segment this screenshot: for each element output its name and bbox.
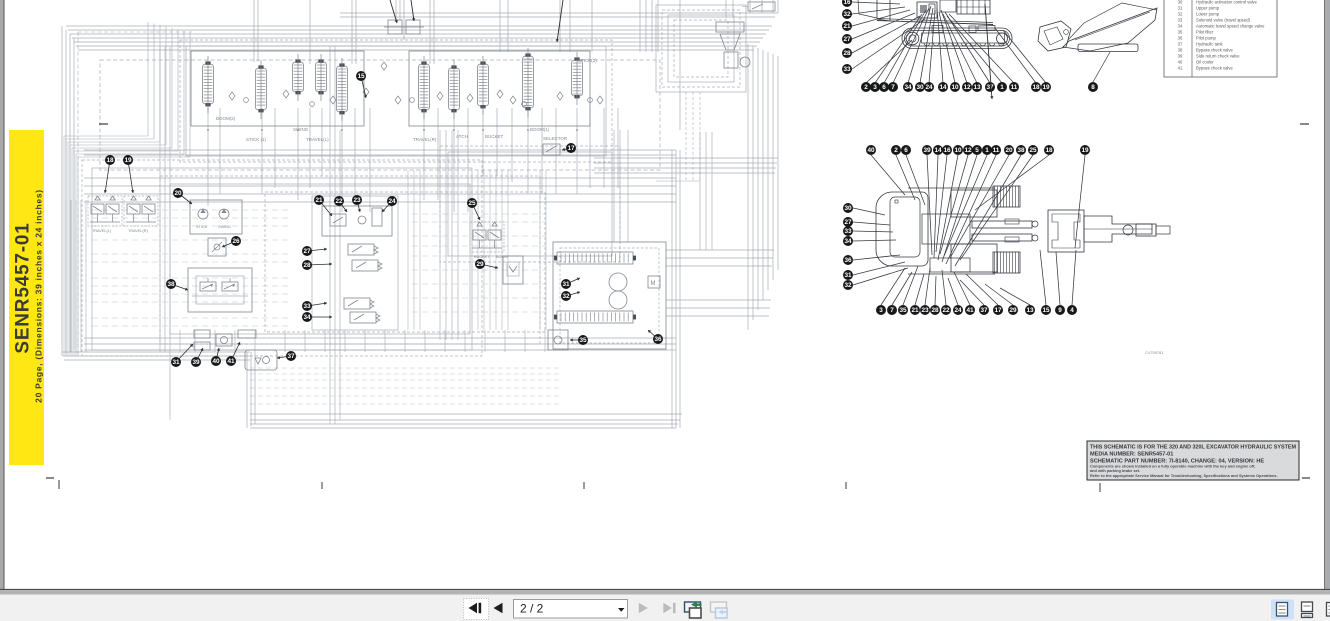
- svg-text:1: 1: [985, 147, 989, 154]
- svg-text:13: 13: [1026, 307, 1034, 314]
- svg-text:Bypass check valve: Bypass check valve: [1196, 66, 1233, 71]
- svg-text:31: 31: [172, 359, 180, 366]
- svg-text:4: 4: [1070, 307, 1074, 314]
- svg-text:M: M: [651, 281, 656, 287]
- svg-text:27: 27: [303, 248, 311, 255]
- svg-text:19: 19: [1042, 84, 1050, 91]
- svg-text:21: 21: [315, 197, 323, 204]
- svg-text:32: 32: [844, 282, 852, 289]
- svg-text:33: 33: [844, 228, 852, 235]
- svg-text:Automatic travel speed change: Automatic travel speed change valve: [1196, 24, 1265, 29]
- svg-text:Side return check valve: Side return check valve: [1196, 54, 1240, 59]
- svg-text:27: 27: [844, 219, 852, 226]
- svg-text:11: 11: [993, 147, 1000, 154]
- svg-text:25: 25: [1029, 147, 1037, 154]
- svg-text:7: 7: [891, 84, 895, 91]
- svg-text:Pilot filter: Pilot filter: [1196, 30, 1214, 35]
- svg-text:3: 3: [873, 84, 877, 91]
- svg-text:TRAVEL(R): TRAVEL(R): [128, 229, 148, 233]
- svg-text:24: 24: [925, 84, 933, 91]
- svg-text:34: 34: [1178, 24, 1183, 29]
- svg-text:5: 5: [975, 147, 979, 154]
- svg-text:31: 31: [844, 272, 852, 279]
- svg-text:35: 35: [899, 307, 907, 314]
- svg-text:SWING: SWING: [293, 127, 309, 132]
- svg-text:25: 25: [468, 200, 476, 207]
- svg-text:21: 21: [911, 307, 919, 314]
- svg-text:36: 36: [1178, 36, 1183, 41]
- svg-text:19: 19: [1081, 147, 1089, 154]
- svg-text:40: 40: [212, 358, 220, 365]
- svg-text:32: 32: [562, 293, 570, 300]
- svg-text:20: 20: [1005, 147, 1013, 154]
- svg-text:Upper pump: Upper pump: [1196, 6, 1220, 11]
- svg-text:24: 24: [954, 307, 962, 314]
- svg-text:35: 35: [1178, 30, 1183, 35]
- svg-text:41: 41: [1178, 66, 1183, 71]
- svg-text:STICK(2): STICK(2): [578, 58, 597, 63]
- svg-text:2: 2: [894, 147, 898, 154]
- svg-text:37: 37: [986, 84, 994, 91]
- svg-text:11: 11: [1011, 84, 1018, 91]
- svg-text:13: 13: [973, 84, 981, 91]
- svg-text:37: 37: [980, 307, 988, 314]
- svg-text:TRAVEL(L): TRAVEL(L): [306, 137, 329, 142]
- svg-text:ATCH: ATCH: [456, 134, 468, 139]
- svg-text:14: 14: [939, 84, 947, 91]
- svg-text:31: 31: [1178, 6, 1183, 11]
- svg-text:16: 16: [843, 0, 851, 6]
- svg-text:Oil cooler: Oil cooler: [1196, 60, 1214, 65]
- svg-text:30: 30: [844, 205, 852, 212]
- svg-text:12: 12: [964, 147, 972, 154]
- svg-text:23: 23: [353, 197, 361, 204]
- svg-text:BUCKET: BUCKET: [485, 134, 504, 139]
- svg-text:Refer to the appropriate Servi: Refer to the appropriate Service Manual …: [1090, 473, 1278, 478]
- svg-text:17: 17: [994, 307, 1002, 314]
- svg-text:22: 22: [335, 198, 343, 205]
- svg-text:Bypass check valve: Bypass check valve: [1196, 48, 1233, 53]
- svg-text:40: 40: [867, 147, 875, 154]
- svg-text:6: 6: [904, 147, 908, 154]
- svg-text:36: 36: [844, 257, 852, 264]
- svg-text:1: 1: [1000, 84, 1004, 91]
- svg-text:18: 18: [1045, 147, 1053, 154]
- svg-text:34: 34: [303, 314, 311, 321]
- svg-text:33: 33: [303, 303, 311, 310]
- svg-text:16: 16: [943, 147, 951, 154]
- svg-text:STICK (1): STICK (1): [246, 137, 267, 142]
- svg-text:32: 32: [843, 11, 851, 18]
- svg-text:12: 12: [963, 84, 971, 91]
- svg-text:Lower pump: Lower pump: [1196, 12, 1220, 17]
- svg-text:10: 10: [951, 84, 959, 91]
- svg-text:9: 9: [1058, 307, 1062, 314]
- svg-text:TRAVEL(L): TRAVEL(L): [92, 229, 112, 233]
- svg-text:30: 30: [1178, 0, 1183, 5]
- svg-text:2 / 2: 2 / 2: [520, 602, 544, 616]
- svg-text:STICK: STICK: [196, 225, 208, 229]
- svg-text:28: 28: [843, 50, 851, 57]
- svg-text:18: 18: [1032, 84, 1040, 91]
- svg-text:SWING: SWING: [218, 225, 231, 229]
- svg-text:36: 36: [654, 336, 662, 343]
- svg-text:38: 38: [167, 281, 175, 288]
- svg-text:37: 37: [1178, 42, 1183, 47]
- svg-text:37: 37: [287, 353, 295, 360]
- svg-text:31: 31: [562, 281, 570, 288]
- svg-text:20 Page, (Dimensions: 39 inche: 20 Page, (Dimensions: 39 inches x 24 inc…: [34, 189, 44, 403]
- svg-text:BUCKET: BUCKET: [474, 255, 490, 259]
- svg-text:39: 39: [923, 147, 931, 154]
- svg-text:19: 19: [124, 157, 132, 164]
- svg-text:MEDIA NUMBER: SENR5457-01: MEDIA NUMBER: SENR5457-01: [1090, 452, 1173, 458]
- svg-text:BOOM(1): BOOM(1): [530, 127, 550, 132]
- svg-text:23: 23: [921, 307, 929, 314]
- svg-text:34: 34: [904, 84, 912, 91]
- svg-text:17: 17: [567, 145, 575, 152]
- svg-text:24: 24: [388, 198, 396, 205]
- svg-text:26: 26: [232, 238, 240, 245]
- svg-text:39: 39: [192, 359, 200, 366]
- svg-text:38: 38: [1017, 147, 1025, 154]
- svg-text:7: 7: [890, 307, 894, 314]
- svg-text:and with parking brake set.: and with parking brake set.: [1090, 468, 1140, 473]
- svg-text:TRAVEL(R): TRAVEL(R): [413, 137, 437, 142]
- svg-text:BOOM(2): BOOM(2): [216, 116, 236, 121]
- svg-text:Hydraulic tank: Hydraulic tank: [1196, 42, 1223, 47]
- svg-text:28: 28: [303, 262, 311, 269]
- svg-text:2: 2: [864, 84, 868, 91]
- svg-text:28: 28: [931, 307, 939, 314]
- svg-text:38: 38: [1178, 48, 1183, 53]
- svg-text:20: 20: [174, 190, 182, 197]
- svg-text:29: 29: [476, 261, 484, 268]
- svg-text:35: 35: [579, 337, 587, 344]
- svg-text:32: 32: [1178, 12, 1183, 17]
- svg-text:Hydraulic activation control v: Hydraulic activation control valve: [1196, 0, 1258, 5]
- svg-text:30: 30: [916, 84, 924, 91]
- svg-text:Solenoid valve (travel speed): Solenoid valve (travel speed): [1196, 18, 1251, 23]
- svg-text:15: 15: [1042, 307, 1050, 314]
- svg-text:Pilot pump: Pilot pump: [1196, 36, 1216, 41]
- svg-text:22: 22: [942, 307, 950, 314]
- svg-text:39: 39: [1178, 54, 1183, 59]
- svg-text:8: 8: [1091, 84, 1095, 91]
- svg-text:21: 21: [843, 23, 851, 30]
- svg-text:3: 3: [879, 307, 883, 314]
- svg-text:10: 10: [954, 147, 962, 154]
- svg-text:41: 41: [966, 307, 974, 314]
- svg-text:15: 15: [357, 73, 365, 80]
- svg-text:40: 40: [1178, 60, 1183, 65]
- svg-text:29: 29: [1009, 307, 1017, 314]
- svg-text:41: 41: [227, 358, 235, 365]
- svg-text:18: 18: [106, 157, 114, 164]
- svg-text:33: 33: [843, 66, 851, 73]
- svg-text:THIS SCHEMATIC IS FOR THE 320: THIS SCHEMATIC IS FOR THE 320 AND 320L E…: [1090, 445, 1296, 451]
- svg-text:SENR5457-01: SENR5457-01: [13, 222, 34, 353]
- svg-text:6: 6: [882, 84, 886, 91]
- svg-text:34: 34: [844, 238, 852, 245]
- svg-text:27: 27: [843, 36, 851, 43]
- svg-text:C4758781: C4758781: [1145, 350, 1164, 355]
- svg-text:SELECTOR: SELECTOR: [543, 136, 568, 141]
- svg-text:33: 33: [1178, 18, 1183, 23]
- svg-text:14: 14: [934, 147, 942, 154]
